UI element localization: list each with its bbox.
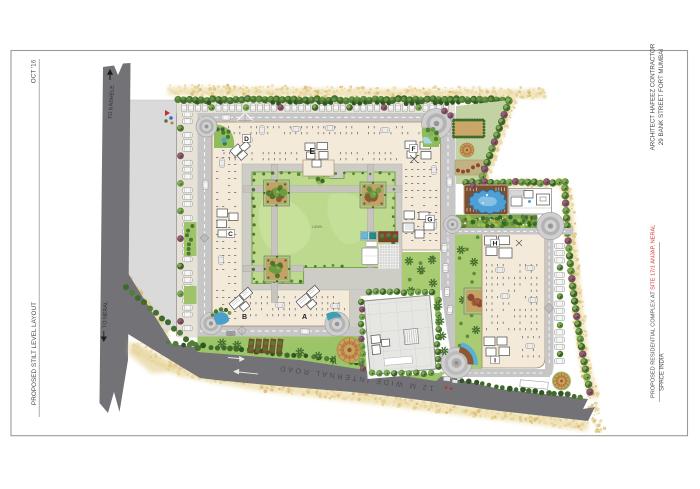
svg-text:F: F <box>411 146 415 153</box>
svg-text:C: C <box>228 231 233 238</box>
svg-text:LAWN: LAWN <box>312 225 323 229</box>
svg-text:PROPOSED RESIDENTIAL COMPLEX A: PROPOSED RESIDENTIAL COMPLEX AT SITE 17/… <box>651 225 657 398</box>
svg-text:G: G <box>427 216 432 223</box>
svg-text:H: H <box>493 240 498 247</box>
svg-text:PROPOSED STILT LEVEL LAYOUT: PROPOSED STILT LEVEL LAYOUT <box>31 302 38 405</box>
svg-text:I: I <box>494 357 496 364</box>
svg-text:D: D <box>244 136 249 143</box>
svg-text:29 BANK STREET FORT MUMBAI: 29 BANK STREET FORT MUMBAI <box>658 49 665 146</box>
svg-text:OCT '16: OCT '16 <box>31 59 38 83</box>
svg-text:SPACE INDIA: SPACE INDIA <box>660 353 666 391</box>
svg-text:B: B <box>242 314 247 321</box>
svg-text:E: E <box>310 146 316 156</box>
svg-text:A: A <box>302 314 307 321</box>
svg-text:TO NERAL: TO NERAL <box>102 301 109 328</box>
svg-text:ARCHITECT HAFEEZ CONTRACTOR: ARCHITECT HAFEEZ CONTRACTOR <box>650 43 657 150</box>
